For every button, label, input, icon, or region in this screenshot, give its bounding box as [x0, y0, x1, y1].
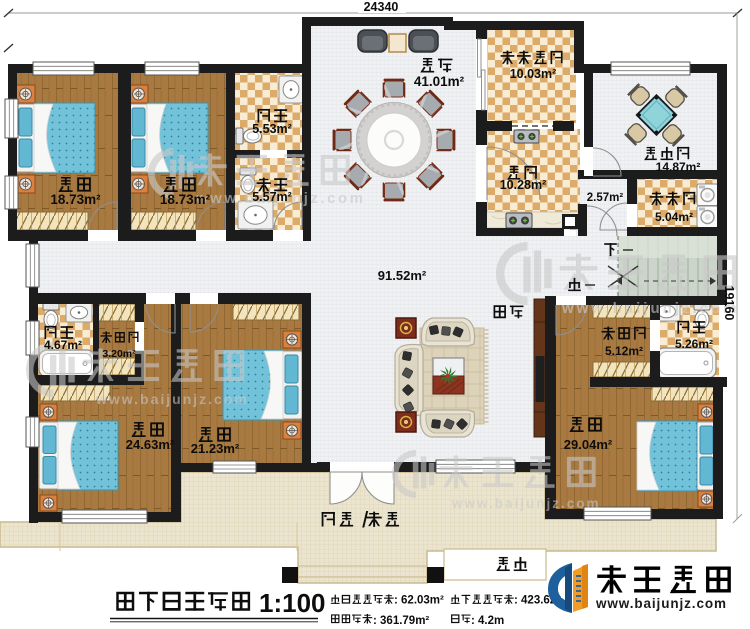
svg-text:2.57m²: 2.57m²	[587, 192, 624, 204]
svg-text:5.04m²: 5.04m²	[655, 210, 693, 224]
svg-text:: 62.03m²: : 62.03m²	[394, 595, 444, 607]
svg-text:24340: 24340	[364, 0, 399, 14]
svg-text:5.12m²: 5.12m²	[605, 344, 643, 358]
svg-text:www.baijunjz.com: www.baijunjz.com	[451, 496, 601, 511]
svg-text:19160: 19160	[722, 286, 736, 321]
svg-text:www.baijunjz.com: www.baijunjz.com	[95, 391, 249, 407]
svg-text:29.04m²: 29.04m²	[564, 437, 613, 452]
svg-text:: 361.79m²: : 361.79m²	[373, 615, 429, 627]
svg-text:10.03m²: 10.03m²	[510, 67, 557, 81]
svg-text:www.baijunjz.com: www.baijunjz.com	[561, 300, 739, 317]
svg-text:www.baijunjz.com: www.baijunjz.com	[595, 596, 727, 611]
svg-text:18.73m²: 18.73m²	[50, 192, 101, 207]
svg-text:5.53m²: 5.53m²	[252, 122, 292, 136]
svg-text:14.87m²: 14.87m²	[656, 160, 701, 174]
svg-text:4.67m²: 4.67m²	[44, 338, 82, 352]
svg-text:24.63m²: 24.63m²	[126, 437, 175, 452]
svg-text:1:100: 1:100	[259, 588, 326, 618]
svg-text:: 4.2m: : 4.2m	[471, 615, 504, 627]
svg-text:3.20m²: 3.20m²	[102, 348, 136, 360]
svg-text:91.52m²: 91.52m²	[378, 268, 427, 283]
svg-text:10.28m²: 10.28m²	[500, 178, 547, 192]
svg-text:5.26m²: 5.26m²	[675, 337, 713, 351]
svg-text:41.01m²: 41.01m²	[414, 74, 465, 89]
svg-text:18.73m²: 18.73m²	[160, 192, 211, 207]
svg-text:5.57m²: 5.57m²	[252, 190, 292, 204]
svg-text:21.23m²: 21.23m²	[191, 441, 240, 456]
